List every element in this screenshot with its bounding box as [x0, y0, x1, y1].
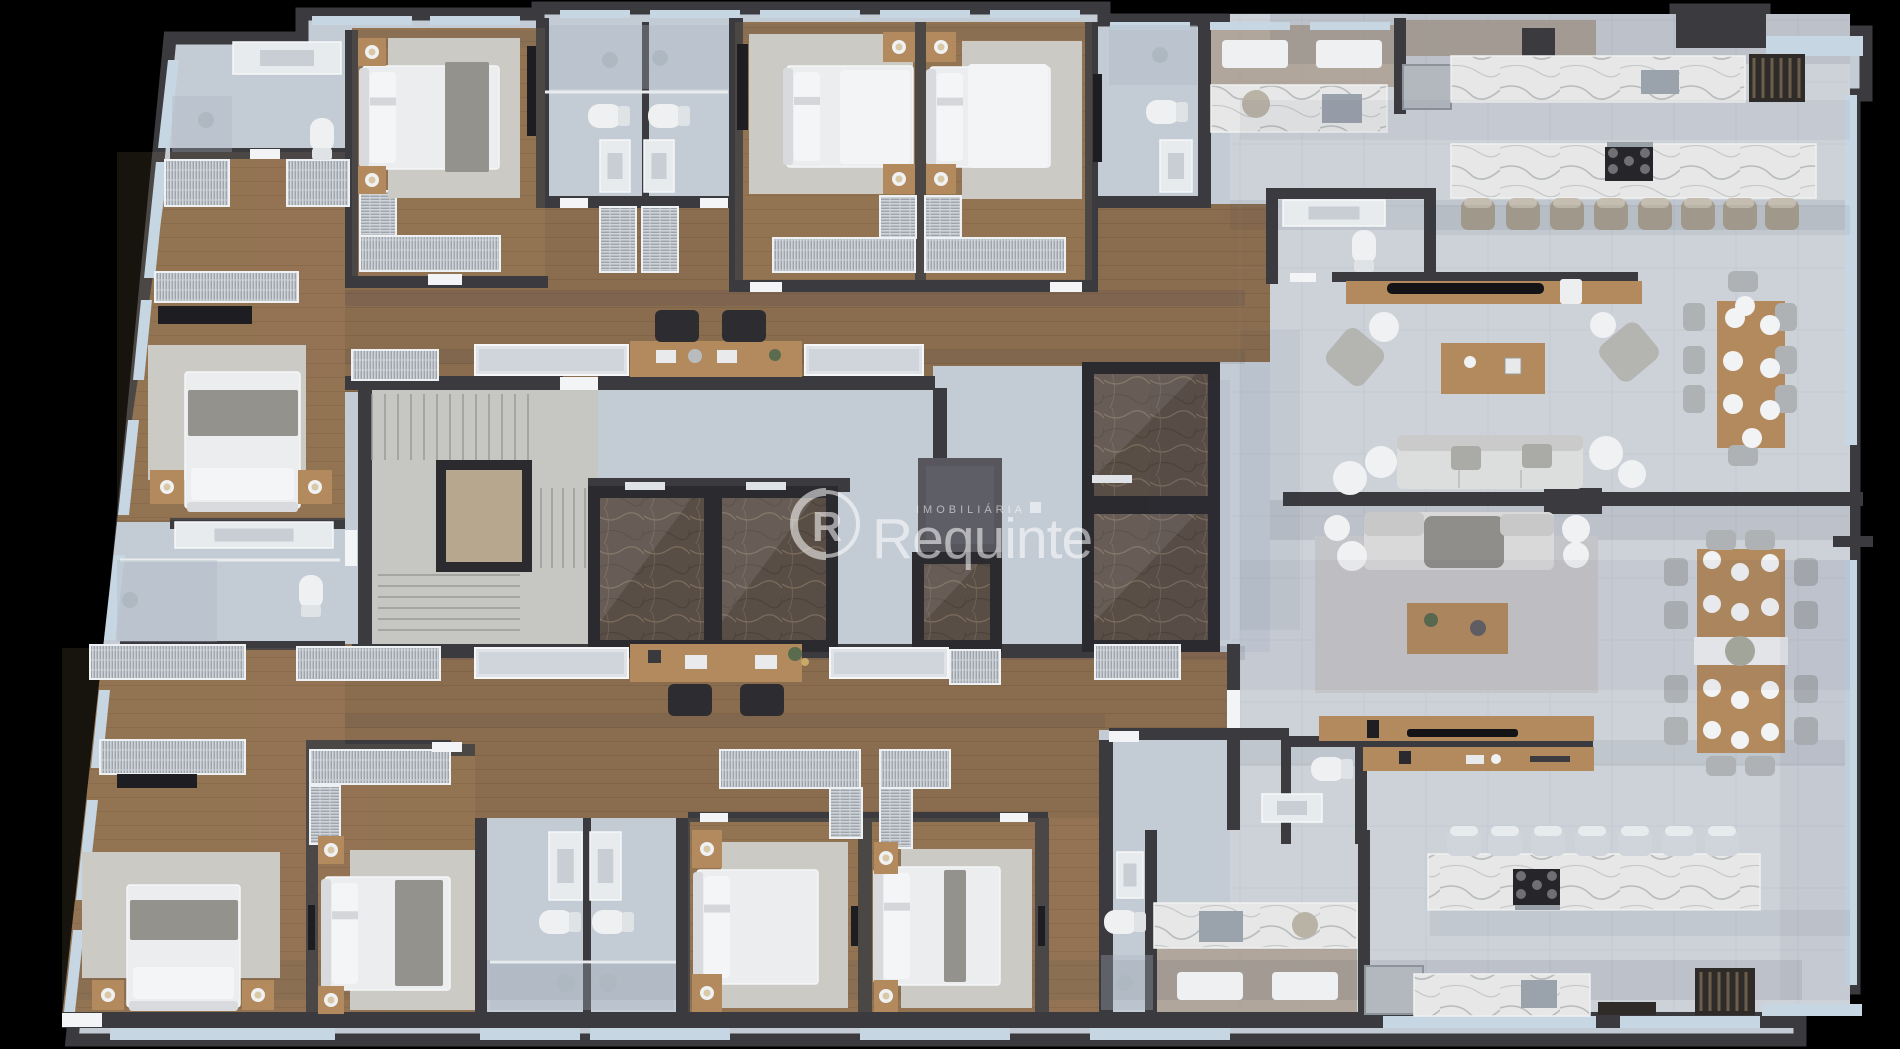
svg-text:Requinte: Requinte	[872, 507, 1092, 571]
svg-text:R: R	[812, 503, 842, 550]
